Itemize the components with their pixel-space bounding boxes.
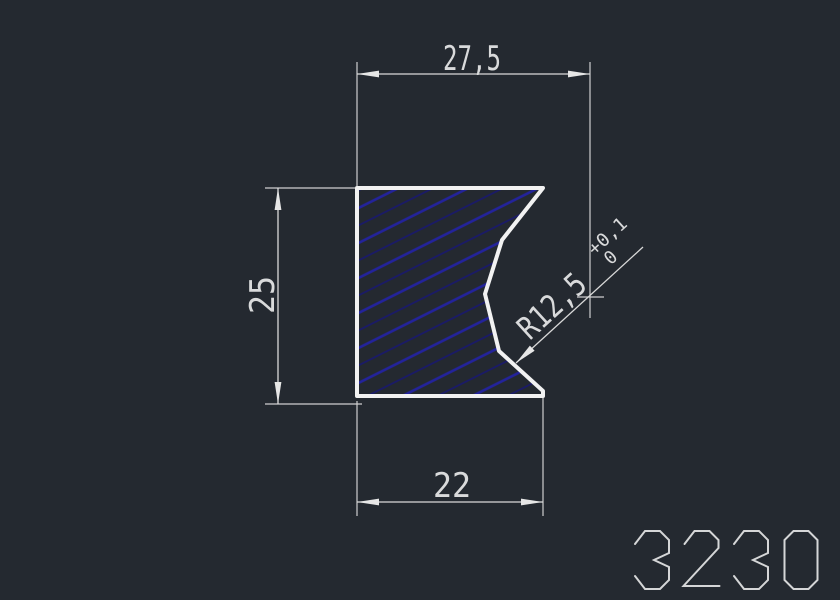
cad-drawing-stage: 27,5 25 22 R12,5 +0,1 0 bbox=[0, 0, 840, 600]
top-dim-text[interactable]: 27,5 bbox=[443, 39, 501, 79]
cad-canvas: 27,5 25 22 R12,5 +0,1 0 bbox=[0, 0, 840, 600]
height-dim-text[interactable]: 25 bbox=[243, 276, 283, 314]
bottom-dim-text[interactable]: 22 bbox=[433, 466, 471, 506]
